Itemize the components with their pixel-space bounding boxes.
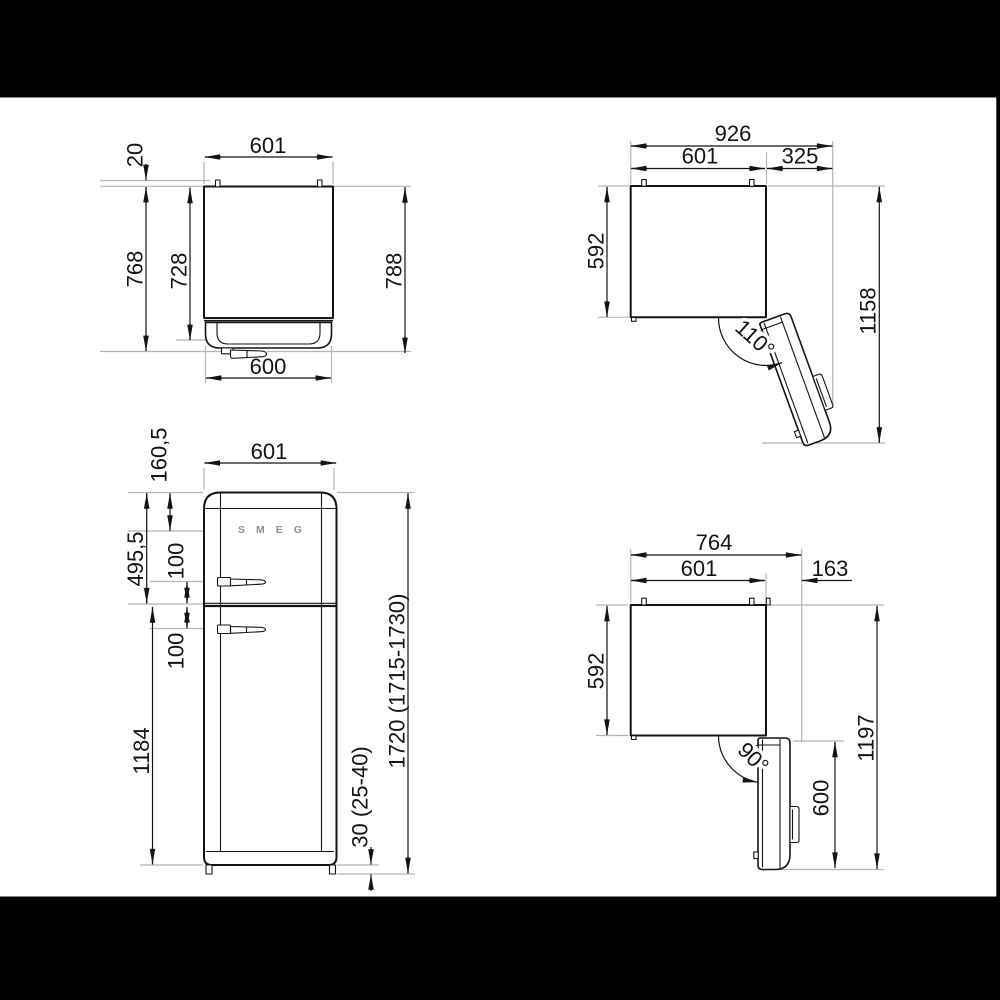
fridge-body-top-view xyxy=(631,605,766,736)
upper-door-handle xyxy=(218,578,231,587)
hinge-pin xyxy=(642,598,647,605)
fridge-body-top-view xyxy=(631,186,766,317)
view-top-open-110: 110° 926 601 325 592 1158 xyxy=(584,121,886,448)
dim-label-door-projection: 163 xyxy=(812,556,849,581)
fridge-body-top-view xyxy=(204,187,333,319)
smeg-logo: SMEG xyxy=(238,524,313,536)
dim-label-body-width: 601 xyxy=(681,556,718,581)
dim-label-depth-inner: 728 xyxy=(167,253,192,290)
dim-label-depth-outer: 768 xyxy=(123,251,148,288)
technical-drawing-page: 601 20 768 728 788 600 110° 926 601 325 … xyxy=(0,0,1000,1000)
letterbox-top xyxy=(0,0,1000,98)
dim-label-width: 601 xyxy=(250,133,287,158)
fridge-dimension-drawing: 601 20 768 728 788 600 110° 926 601 325 … xyxy=(0,0,1000,1000)
foot-mark xyxy=(632,318,637,322)
dim-label-width: 601 xyxy=(251,439,288,464)
dim-label-lower-handle: 100 xyxy=(164,633,189,670)
dim-label-total-depth: 1197 xyxy=(854,714,879,761)
view-top-open-90: 90° 764 601 163 592 1197 600 xyxy=(584,530,885,870)
hinge-pin xyxy=(216,180,221,187)
hinge-pin xyxy=(750,598,755,605)
view-top-closed: 601 20 768 728 788 600 xyxy=(100,133,411,383)
dim-label-fridge-section: 495,5 xyxy=(123,531,148,586)
dim-label-door-width: 600 xyxy=(250,354,287,379)
dim-label-body-depth: 592 xyxy=(584,653,609,690)
door-open-110 xyxy=(755,309,842,448)
letterbox-right-sliver xyxy=(996,0,1000,1000)
dim-label-door-projection: 325 xyxy=(782,144,819,169)
dim-label-rear-clearance: 20 xyxy=(123,143,148,167)
dim-label-feet-height: 30 (25-40) xyxy=(348,746,373,848)
letterbox-bottom xyxy=(0,897,1000,1000)
dim-label-total-height: 1720 (1715-1730) xyxy=(385,594,410,769)
dim-label-door-depth: 600 xyxy=(809,780,834,817)
dim-label-total-depth: 1158 xyxy=(856,287,881,334)
foot xyxy=(330,865,336,874)
dim-label-body-depth: 592 xyxy=(584,233,609,270)
dim-label-depth-total: 788 xyxy=(382,253,407,290)
dim-label-total-width: 926 xyxy=(715,121,752,146)
foot-mark xyxy=(632,736,637,740)
hinge-pin xyxy=(750,180,755,187)
hinge-pin xyxy=(318,180,323,187)
hinge-pin xyxy=(642,180,647,187)
dim-label-total-width: 764 xyxy=(696,530,733,555)
dim-label-body-width: 601 xyxy=(682,144,719,169)
dim-label-upper-handle: 100 xyxy=(164,543,189,580)
fridge-front-outline xyxy=(204,493,337,866)
view-front: SMEG 601 160,5 495,5 100 100 1184 1720 (… xyxy=(123,427,415,891)
foot xyxy=(206,865,212,874)
lower-door-handle xyxy=(218,625,231,634)
hinge-pin xyxy=(766,598,770,605)
dim-label-logo-offset: 160,5 xyxy=(147,427,172,482)
dim-label-lower-door: 1184 xyxy=(129,727,154,774)
